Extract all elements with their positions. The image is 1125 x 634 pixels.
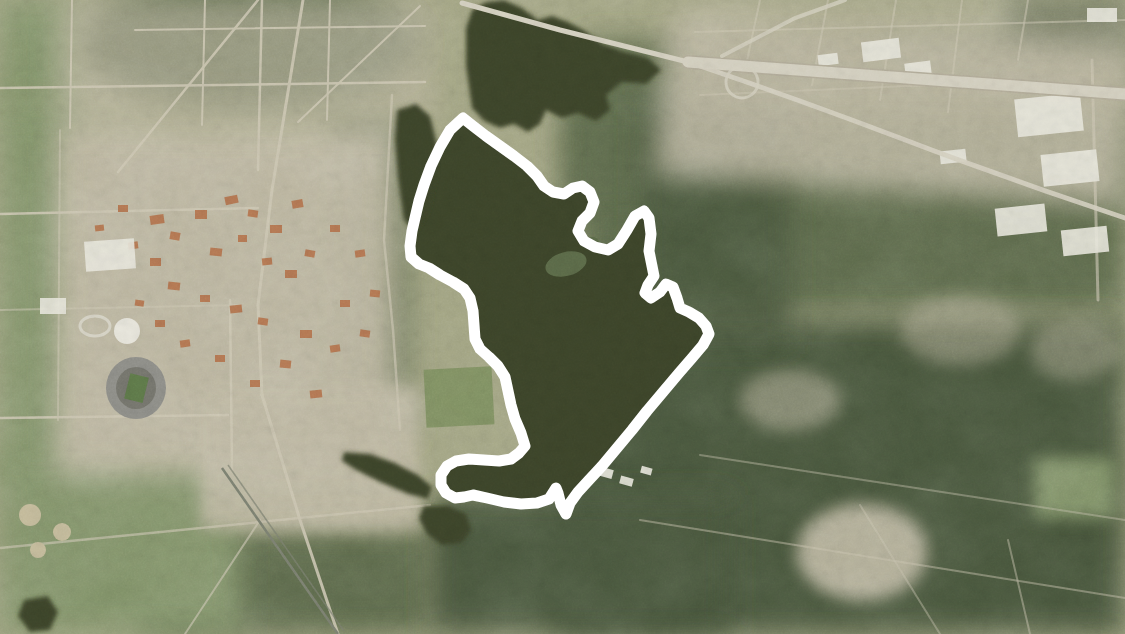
satellite-map[interactable] bbox=[0, 0, 1125, 634]
photo-grain-texture bbox=[0, 0, 1125, 634]
